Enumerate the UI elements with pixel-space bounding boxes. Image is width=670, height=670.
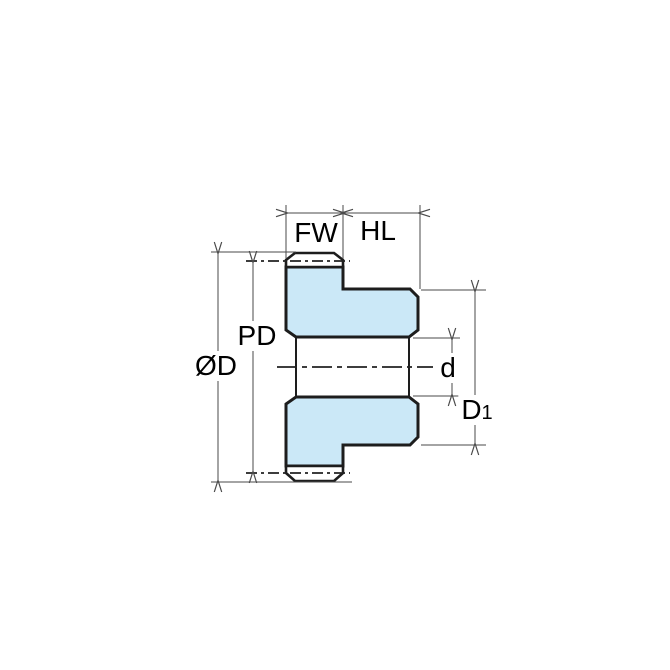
gear-drawing-svg [0,0,670,670]
gear-dimension-drawing: FW HL PD ØD d D1 [0,0,670,670]
label-bore-diameter: d [437,353,459,383]
label-face-width: FW [294,219,338,247]
label-pitch-diameter: PD [235,321,280,351]
label-hub-length: HL [360,217,396,245]
label-outer-diameter: ØD [192,351,240,381]
gear-lower-body [286,397,418,466]
label-hub-diameter-main: D [461,394,481,425]
label-hub-diameter-subscript: 1 [482,402,493,424]
gear-upper-body [286,267,418,337]
tooth-tip-top [286,253,343,267]
label-hub-diameter: D1 [458,395,495,425]
